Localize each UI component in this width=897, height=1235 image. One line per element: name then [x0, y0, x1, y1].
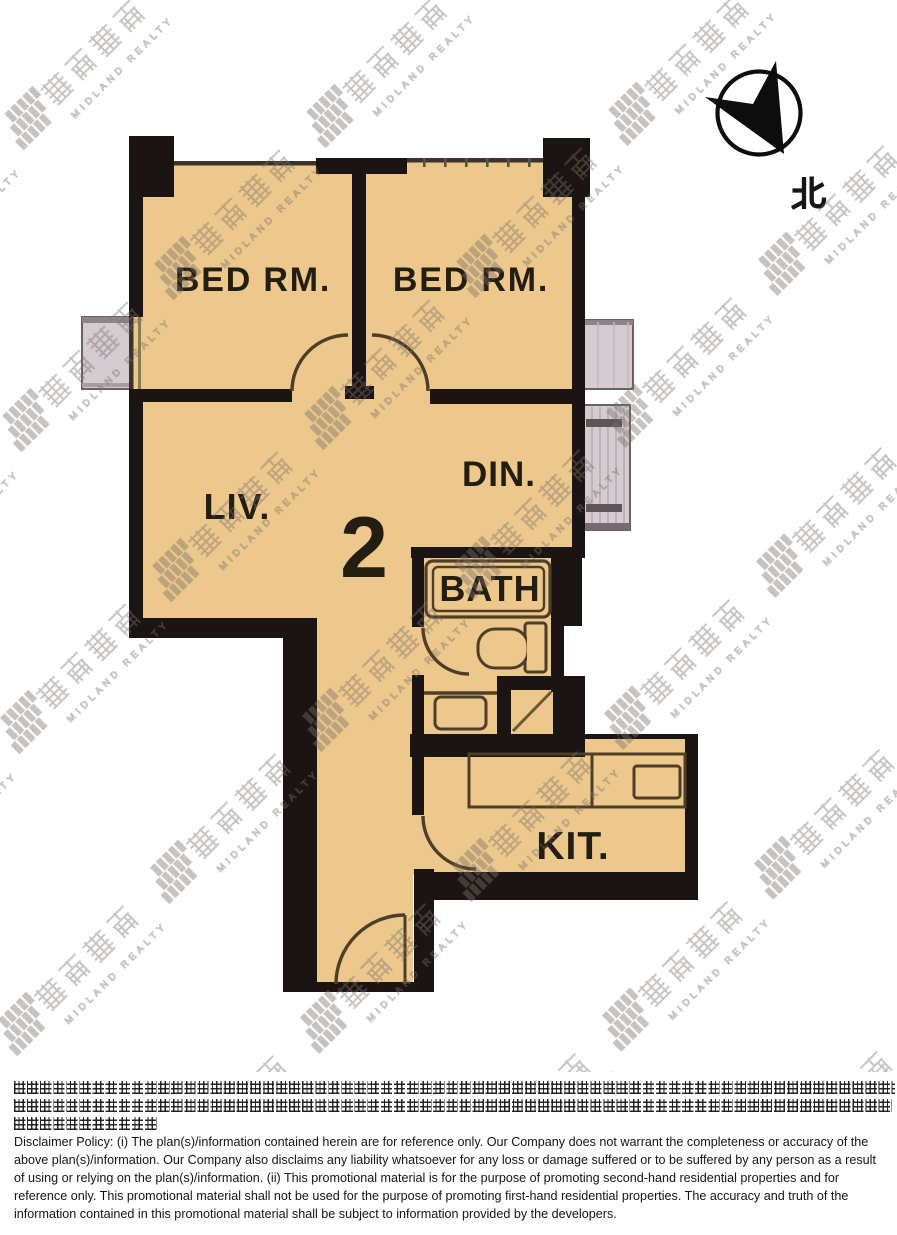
svg-text:DIN.: DIN.	[462, 455, 536, 494]
svg-text:2: 2	[340, 500, 388, 596]
svg-text:BED RM.: BED RM.	[175, 261, 331, 299]
